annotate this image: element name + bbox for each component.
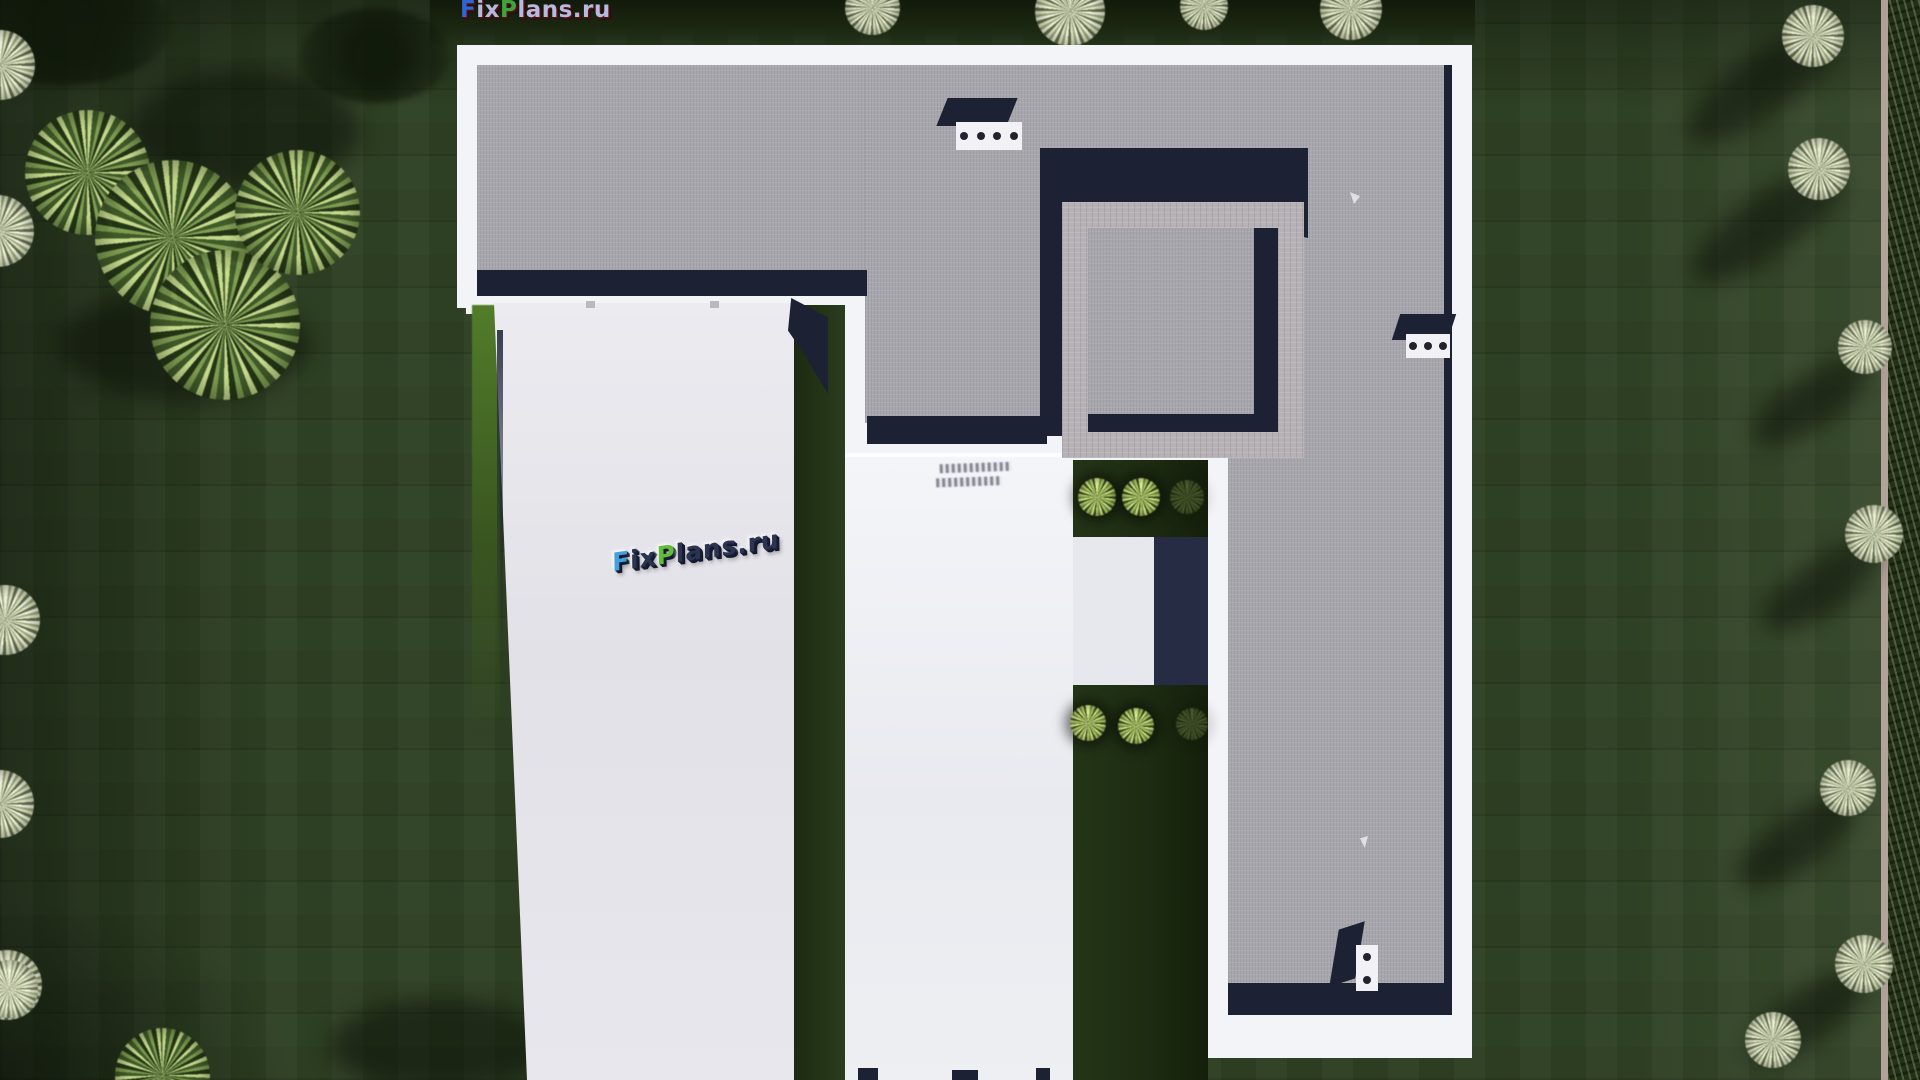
vent-hole: [1363, 953, 1371, 961]
roof-shadow-band: [477, 270, 867, 296]
watermark-3d-letter: ix: [630, 542, 657, 575]
watermark-3d-letter: .ru: [737, 524, 780, 559]
drain-mark: [858, 1068, 878, 1080]
vent-hole: [1409, 342, 1417, 350]
tree-shadowy: [300, 8, 450, 103]
tree: [150, 250, 300, 400]
watermark-3d-letter: P: [656, 539, 676, 571]
tree: [1788, 138, 1850, 200]
roof-vent-3hole: [1396, 314, 1456, 362]
courtyard-patio: [1073, 537, 1154, 685]
courtyard-wall-shadow: [1154, 537, 1208, 685]
logo-letter: ix: [476, 0, 500, 23]
vent-hole: [1424, 342, 1432, 350]
vent-hole: [1439, 342, 1447, 350]
drain-mark: [1036, 1068, 1050, 1080]
center-drive-slab: [845, 453, 1073, 1080]
aerial-render: FixPlans.ru FixPlans.ru: [0, 0, 1920, 1080]
court-inner-shadow: [1088, 414, 1278, 432]
court-shadow: [1040, 148, 1308, 210]
tree: [235, 150, 360, 275]
logo-letter: F: [460, 0, 476, 23]
vent-hole: [1010, 132, 1018, 140]
court-inner-roof: [1088, 228, 1278, 432]
logo-letter: lans: [517, 0, 572, 23]
vent-hole: [977, 132, 985, 140]
tree: [1782, 5, 1844, 67]
left-drive-slab: [494, 303, 794, 1080]
logo-letter: P: [500, 0, 517, 23]
drain-mark: [710, 301, 719, 308]
bush: [1118, 708, 1154, 744]
drive-edge-shadow: [497, 330, 503, 670]
logo-letter: .ru: [573, 0, 611, 23]
tree-shadow: [330, 1000, 550, 1080]
roof-shadow-band: [867, 416, 1047, 444]
tree: [1820, 760, 1876, 816]
sunlit-grass-strip: [472, 305, 500, 735]
roof-shadow-band: [1444, 65, 1452, 1015]
center-grass-strip: [794, 305, 845, 1080]
vent-hole: [960, 132, 968, 140]
vent-face: [1406, 334, 1450, 358]
drain-mark: [586, 301, 595, 308]
vent-hole: [1363, 976, 1371, 984]
tree: [1835, 935, 1893, 993]
bush: [1170, 480, 1204, 514]
bush: [1078, 478, 1116, 516]
illegible-stamp: [935, 456, 1016, 497]
vent-face: [1356, 945, 1378, 991]
roof-vent-4hole: [940, 96, 1030, 152]
drain-mark: [952, 1070, 978, 1080]
vent-hole: [993, 132, 1001, 140]
tree: [1838, 320, 1892, 374]
bush: [1122, 478, 1160, 516]
court-inner-shadow: [1254, 228, 1278, 432]
site-logo: FixPlans.ru: [460, 0, 611, 23]
tree: [1845, 505, 1903, 563]
tree: [1745, 1012, 1801, 1068]
bush: [1176, 708, 1208, 740]
vent-face: [956, 122, 1022, 150]
bush: [1070, 705, 1106, 741]
watermark-3d-letter: F: [612, 545, 630, 577]
roof-vent-2hole: [1332, 925, 1382, 995]
